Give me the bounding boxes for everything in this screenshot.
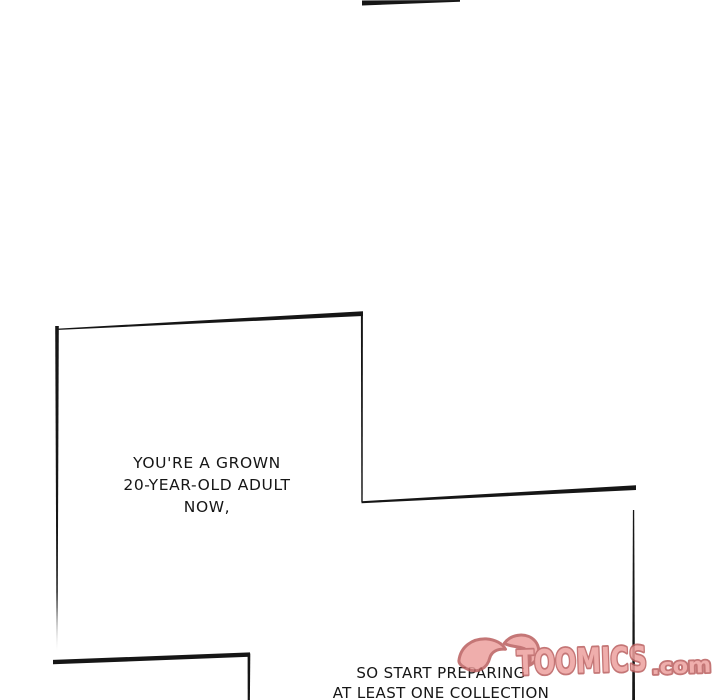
speech-line: YOU'RE A GROWN bbox=[77, 452, 337, 474]
panel-middle-right-border bbox=[361, 312, 363, 502]
panel-right-vertical-border bbox=[632, 510, 635, 700]
speech-line: SO START PREPARING bbox=[311, 664, 571, 684]
panel-borders bbox=[0, 0, 720, 700]
panel-top-cut-border bbox=[362, 0, 460, 6]
speech-text-grown-adult: YOU'RE A GROWN 20-YEAR-OLD ADULT NOW, bbox=[77, 452, 337, 518]
panel-middle-left-border bbox=[55, 326, 59, 651]
speech-line: 20-YEAR-OLD ADULT bbox=[77, 474, 337, 496]
panel-bottomleft-right-border bbox=[248, 654, 251, 700]
speech-line: NOW, bbox=[77, 496, 337, 518]
comic-page: YOU'RE A GROWN 20-YEAR-OLD ADULT NOW, SO… bbox=[0, 0, 720, 700]
panel-bottomleft-top-border bbox=[53, 652, 250, 664]
panel-middle-top-border bbox=[56, 311, 363, 330]
panel-middle-step-border bbox=[362, 485, 637, 503]
speech-line: AT LEAST ONE COLLECTION bbox=[311, 684, 571, 700]
speech-text-start-preparing: SO START PREPARING AT LEAST ONE COLLECTI… bbox=[311, 664, 571, 700]
